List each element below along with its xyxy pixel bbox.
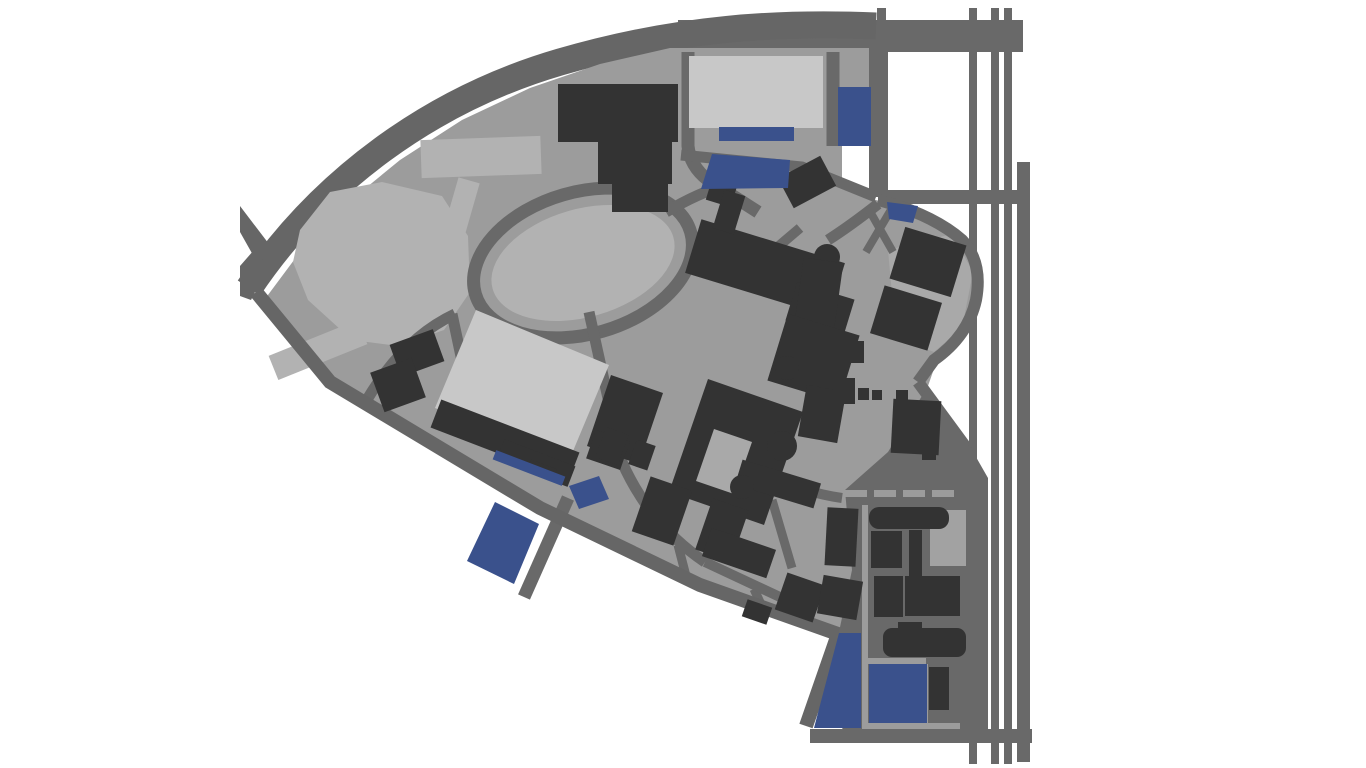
- road-dash-1: [845, 490, 867, 497]
- building-auditorium-mid: [598, 142, 672, 184]
- building-block-f: [905, 576, 960, 616]
- block-lane-h1: [868, 658, 926, 664]
- road-dash-4: [932, 490, 954, 497]
- building-block-b: [869, 507, 949, 529]
- building-block-g: [883, 628, 966, 657]
- building-south-row-3: [817, 575, 863, 620]
- building-round-end: [775, 356, 799, 380]
- parking-north-rect: [838, 87, 871, 146]
- building-courtyard-rotunda: [767, 431, 797, 461]
- building-block-c: [871, 531, 902, 568]
- building-east-square: [891, 399, 942, 455]
- building-east-small-2: [833, 378, 855, 404]
- building-block-d: [909, 530, 922, 576]
- building-auditorium-south: [612, 184, 668, 212]
- building-auditorium-main: [558, 84, 678, 142]
- map-stage: [0, 0, 1366, 768]
- rail-road-3: [1004, 52, 1012, 764]
- field-strip-nw: [420, 136, 541, 178]
- parking-strip-north: [719, 127, 794, 141]
- pavilion-building: [689, 56, 823, 128]
- rail-road-2: [991, 52, 999, 764]
- building-block-h: [929, 667, 949, 710]
- block-lane-vertical: [862, 505, 868, 729]
- road-dash-2: [874, 490, 896, 497]
- right-avenue: [1017, 162, 1030, 762]
- parking-triangle: [701, 154, 790, 189]
- parking-lot-south: [869, 664, 927, 723]
- building-block-a: [825, 507, 859, 567]
- building-east-square-tab2: [922, 452, 936, 460]
- building-east-small-1: [846, 341, 864, 363]
- building-tiny-2: [872, 390, 882, 400]
- building-block-e: [874, 576, 903, 617]
- building-east-square-tab1: [896, 390, 908, 400]
- building-tiny-1: [858, 388, 869, 400]
- building-block-g-bump: [898, 622, 922, 634]
- campus-east-road: [869, 50, 888, 197]
- building-strip-rotunda: [730, 475, 754, 499]
- block-lane-h2: [868, 723, 960, 729]
- campus-map[interactable]: [0, 0, 1366, 768]
- bottom-road: [810, 729, 1032, 743]
- road-dash-3: [903, 490, 925, 497]
